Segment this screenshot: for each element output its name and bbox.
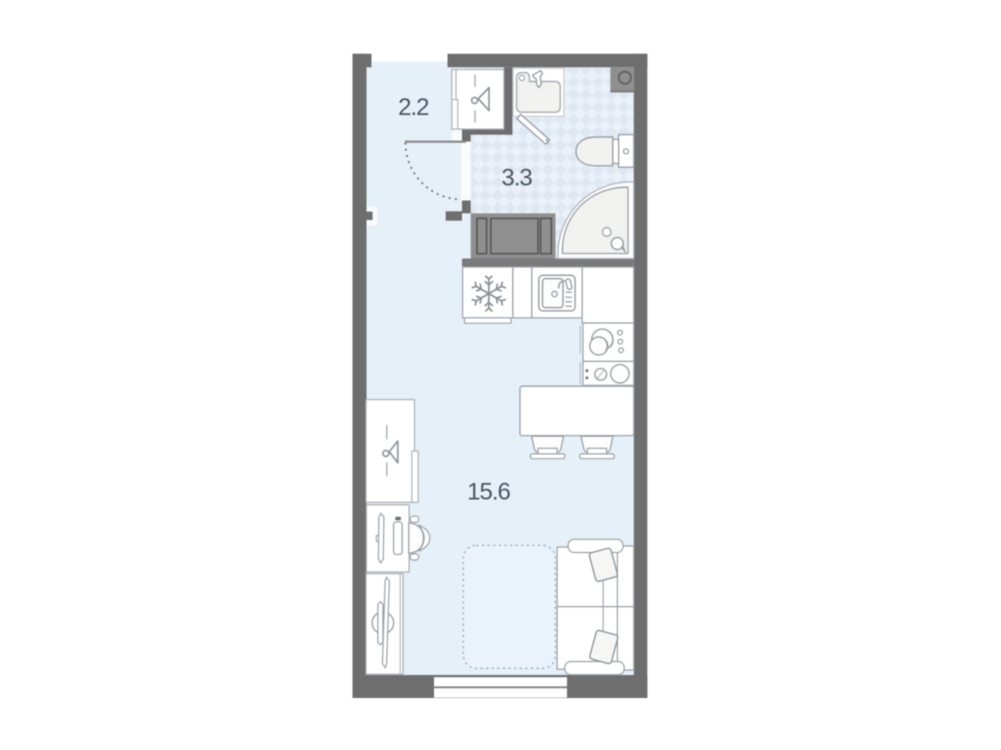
svg-text:2.2: 2.2 — [398, 94, 429, 121]
svg-text:3.3: 3.3 — [501, 165, 532, 192]
svg-text:15.6: 15.6 — [467, 478, 510, 505]
